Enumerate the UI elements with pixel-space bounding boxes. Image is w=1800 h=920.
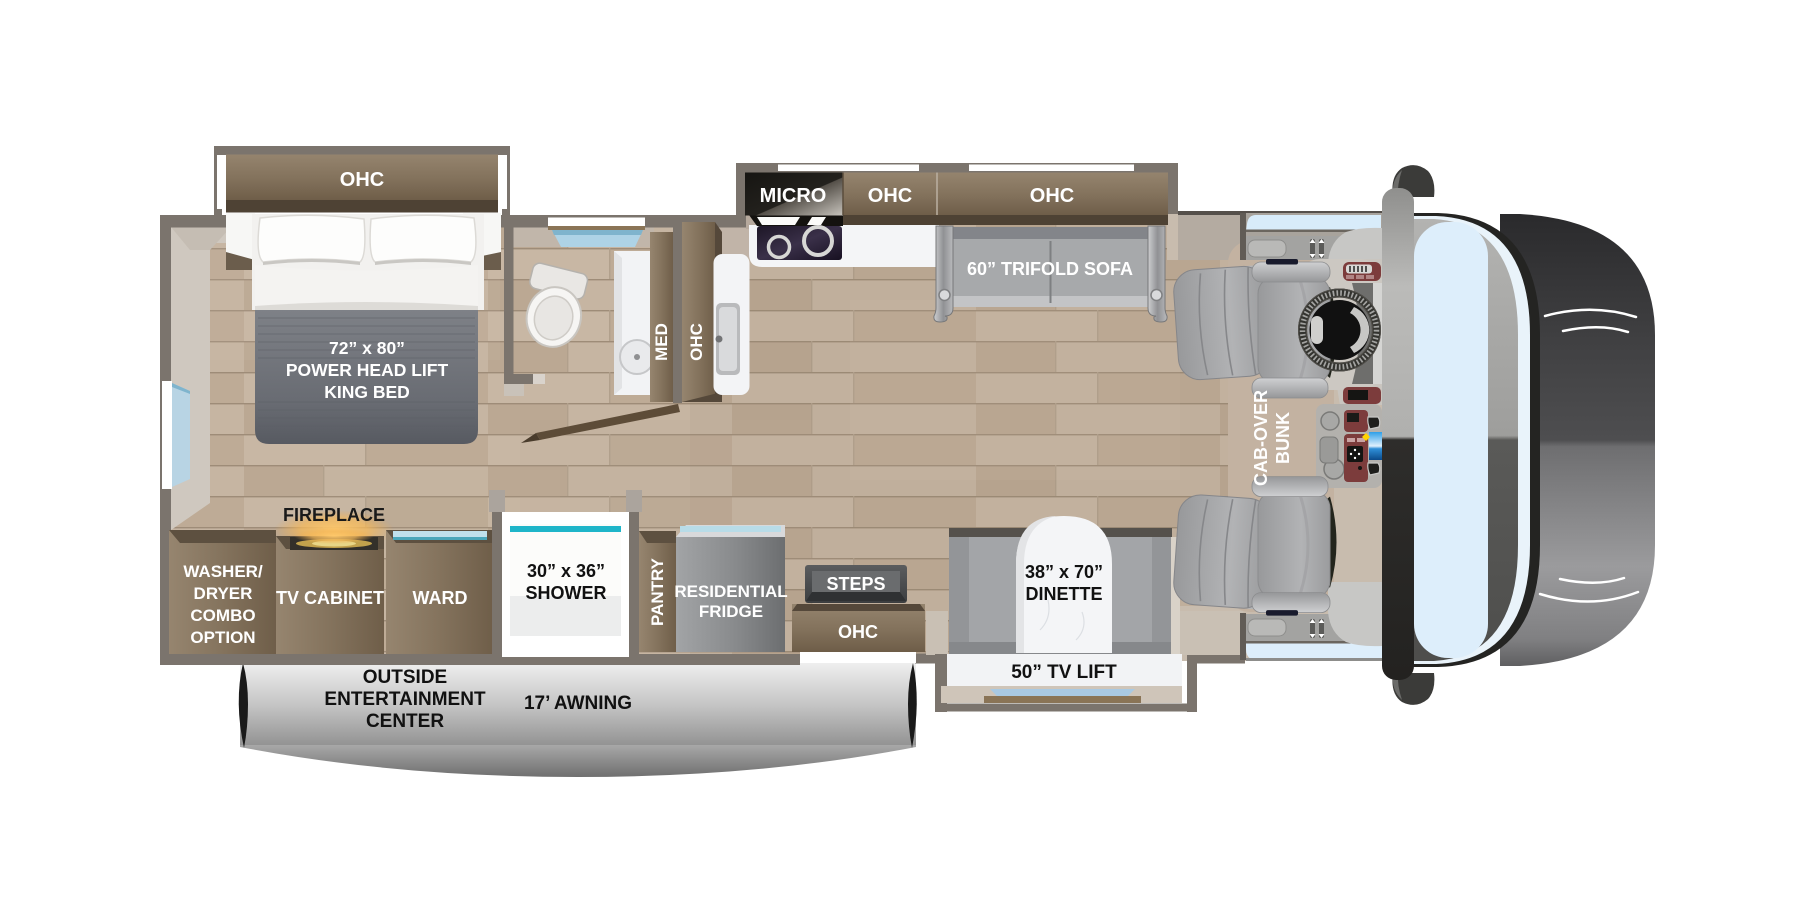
svg-text:DRYER: DRYER xyxy=(194,584,253,603)
svg-text:60” TRIFOLD SOFA: 60” TRIFOLD SOFA xyxy=(967,259,1133,279)
svg-text:OUTSIDE: OUTSIDE xyxy=(363,667,447,688)
svg-text:OHC: OHC xyxy=(1030,185,1074,207)
svg-text:FRIDGE: FRIDGE xyxy=(699,602,763,621)
svg-text:WASHER/: WASHER/ xyxy=(183,562,263,581)
svg-text:DINETTE: DINETTE xyxy=(1025,584,1102,604)
svg-text:OHC: OHC xyxy=(868,185,912,207)
svg-text:STEPS: STEPS xyxy=(826,574,885,594)
svg-text:BUNK: BUNK xyxy=(1273,412,1293,464)
svg-text:FIREPLACE: FIREPLACE xyxy=(283,505,385,525)
svg-text:OHC: OHC xyxy=(687,323,706,361)
svg-text:OHC: OHC xyxy=(340,169,384,191)
svg-text:CAB-OVER: CAB-OVER xyxy=(1251,390,1271,486)
svg-text:OPTION: OPTION xyxy=(190,628,255,647)
svg-text:TV CABINET: TV CABINET xyxy=(276,588,384,608)
svg-text:30” x 36”: 30” x 36” xyxy=(527,561,605,581)
svg-text:ENTERTAINMENT: ENTERTAINMENT xyxy=(324,689,486,710)
svg-text:KING BED: KING BED xyxy=(324,382,410,402)
svg-text:OHC: OHC xyxy=(838,622,878,642)
svg-text:PANTRY: PANTRY xyxy=(648,557,667,626)
svg-text:WARD: WARD xyxy=(413,588,468,608)
svg-text:17’ AWNING: 17’ AWNING xyxy=(524,693,632,714)
svg-text:MED: MED xyxy=(652,323,671,361)
svg-text:COMBO: COMBO xyxy=(190,606,255,625)
svg-text:72” x 80”: 72” x 80” xyxy=(329,338,405,358)
svg-text:SHOWER: SHOWER xyxy=(526,583,607,603)
svg-text:CENTER: CENTER xyxy=(366,711,444,732)
svg-text:50” TV LIFT: 50” TV LIFT xyxy=(1011,662,1117,683)
svg-text:38” x 70”: 38” x 70” xyxy=(1025,562,1103,582)
svg-text:POWER HEAD LIFT: POWER HEAD LIFT xyxy=(286,360,449,380)
svg-text:MICRO: MICRO xyxy=(760,185,827,207)
svg-text:RESIDENTIAL: RESIDENTIAL xyxy=(674,582,787,601)
